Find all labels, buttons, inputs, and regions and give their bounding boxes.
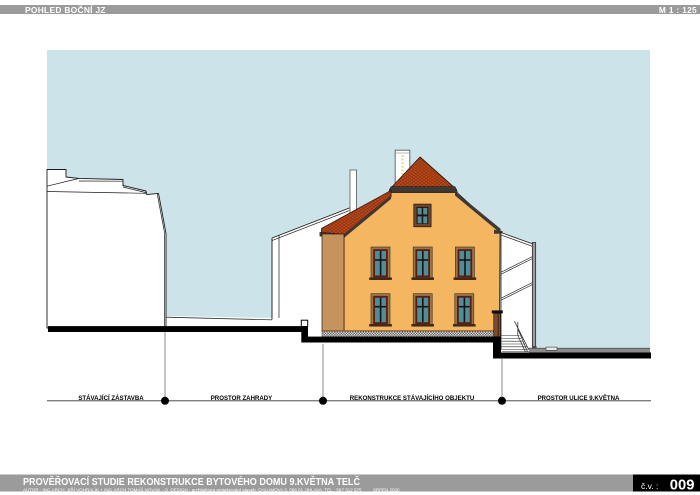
svg-text:009: 009 [670, 478, 695, 494]
svg-text:č.v. :: č.v. : [641, 481, 658, 491]
svg-text:POHLED BOČNÍ JZ: POHLED BOČNÍ JZ [25, 4, 106, 15]
svg-text:PROSTOR ULICE 9.KVĚTNA: PROSTOR ULICE 9.KVĚTNA [538, 394, 620, 402]
svg-text:STÁVAJÍCÍ ZÁSTAVBA: STÁVAJÍCÍ ZÁSTAVBA [78, 394, 144, 402]
svg-text:PROSTOR ZAHRADY: PROSTOR ZAHRADY [211, 395, 273, 402]
svg-text:PROVĚŘOVACÍ STUDIE REKONSTRUKC: PROVĚŘOVACÍ STUDIE REKONSTRUKCE BYTOVÉHO… [23, 475, 360, 488]
svg-text:SRPEN 2020: SRPEN 2020 [373, 487, 400, 492]
svg-text:REKONSTRUKCE STÁVAJÍCÍHO OBJEK: REKONSTRUKCE STÁVAJÍCÍHO OBJEKTU [350, 394, 475, 402]
svg-text:M 1 : 125: M 1 : 125 [659, 5, 697, 15]
svg-text:AUTOR : ING.ARCH. JIŘÍ VOHRALÍ: AUTOR : ING.ARCH. JIŘÍ VOHRALÍK + ING.AR… [23, 485, 362, 492]
